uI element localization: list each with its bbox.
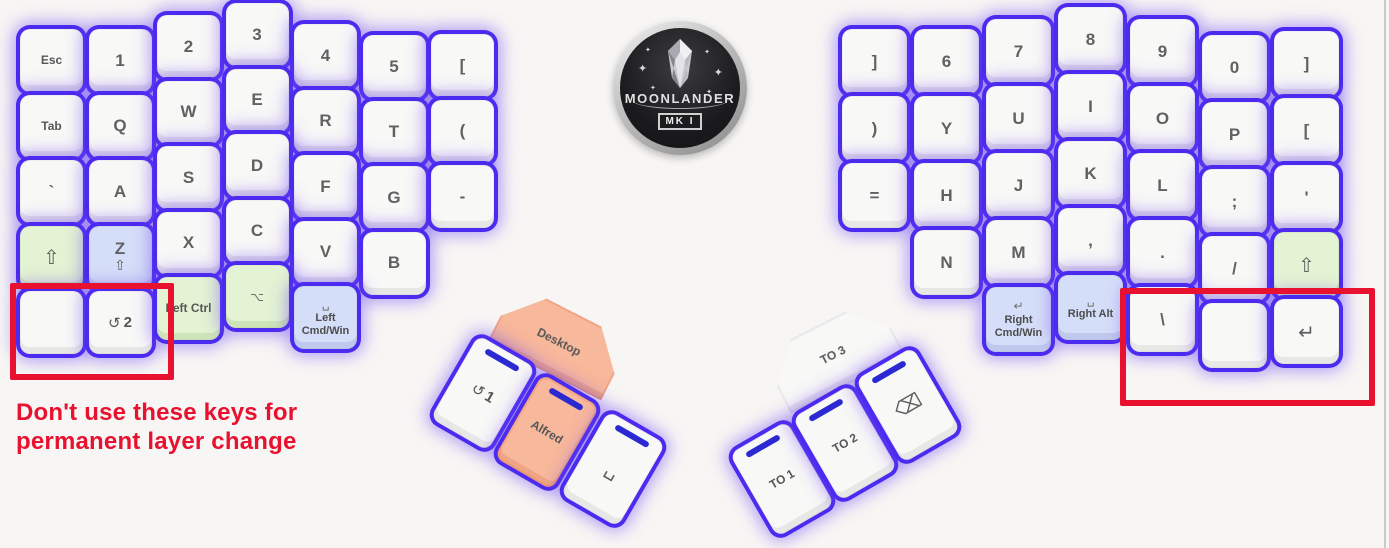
moonlander-logo: ✦ ✦ ✦ ✦ ✦ ✦ MOONLANDER MK I [613, 21, 747, 155]
warning-text-line1: Don't use these keys for [16, 398, 297, 427]
sparkle-icon: ✦ [704, 48, 710, 56]
keyboard-layout-canvas: Esc12345[TabQWERT(`ASDFG-⇧Z⇧XCVB↺2Left C… [0, 0, 1389, 548]
backspace-icon: ⌫ [891, 389, 925, 420]
sparkle-icon: ✦ [650, 84, 656, 92]
logo-badge: MK I [658, 113, 701, 130]
window-edge-line [1384, 0, 1386, 548]
sparkle-icon: ✦ [645, 46, 651, 54]
sparkle-icon: ✦ [714, 66, 723, 79]
key-label: TO 2 [828, 429, 863, 456]
sparkle-icon: ✦ [706, 88, 712, 96]
moonlander-logo-face: ✦ ✦ ✦ ✦ ✦ ✦ MOONLANDER MK I [620, 28, 740, 148]
led-indicator [745, 434, 781, 458]
sparkle-icon: ✦ [638, 62, 647, 75]
warning-box-left [10, 283, 174, 380]
logo-horizon-line [632, 100, 728, 109]
warning-text: Don't use these keys for permanent layer… [16, 398, 297, 456]
crystal-icon [657, 38, 703, 90]
warning-box-right [1120, 288, 1375, 406]
key-label: TO 1 [765, 465, 800, 492]
warning-text-line2: permanent layer change [16, 427, 297, 456]
key-label: TO 3 [816, 342, 851, 368]
